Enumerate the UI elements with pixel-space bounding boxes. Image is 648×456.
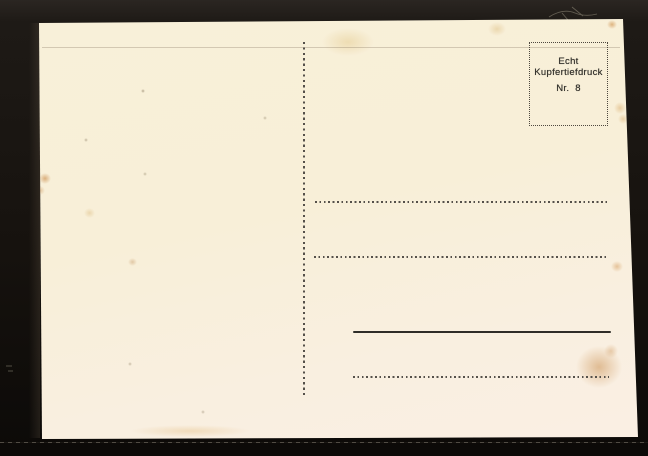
postcard-back: Echt Kupfertiefdruck Nr. 8 [0, 0, 648, 456]
address-line-2 [314, 256, 608, 258]
card-edge-shadow [29, 23, 40, 438]
photo-backdrop: Echt Kupfertiefdruck Nr. 8 [0, 0, 648, 456]
stamp-box-text-line1: Echt [558, 56, 578, 67]
address-line-4 [353, 376, 609, 378]
center-divider-line [303, 42, 305, 397]
stamp-box-text-line2: Kupfertiefdruck [534, 67, 602, 78]
address-line-3 [353, 331, 611, 333]
stamp-box-number: Nr. 8 [556, 83, 581, 94]
address-line-1 [315, 201, 608, 203]
background-seam-line [0, 442, 648, 443]
stamp-box: Echt Kupfertiefdruck Nr. 8 [529, 42, 608, 126]
